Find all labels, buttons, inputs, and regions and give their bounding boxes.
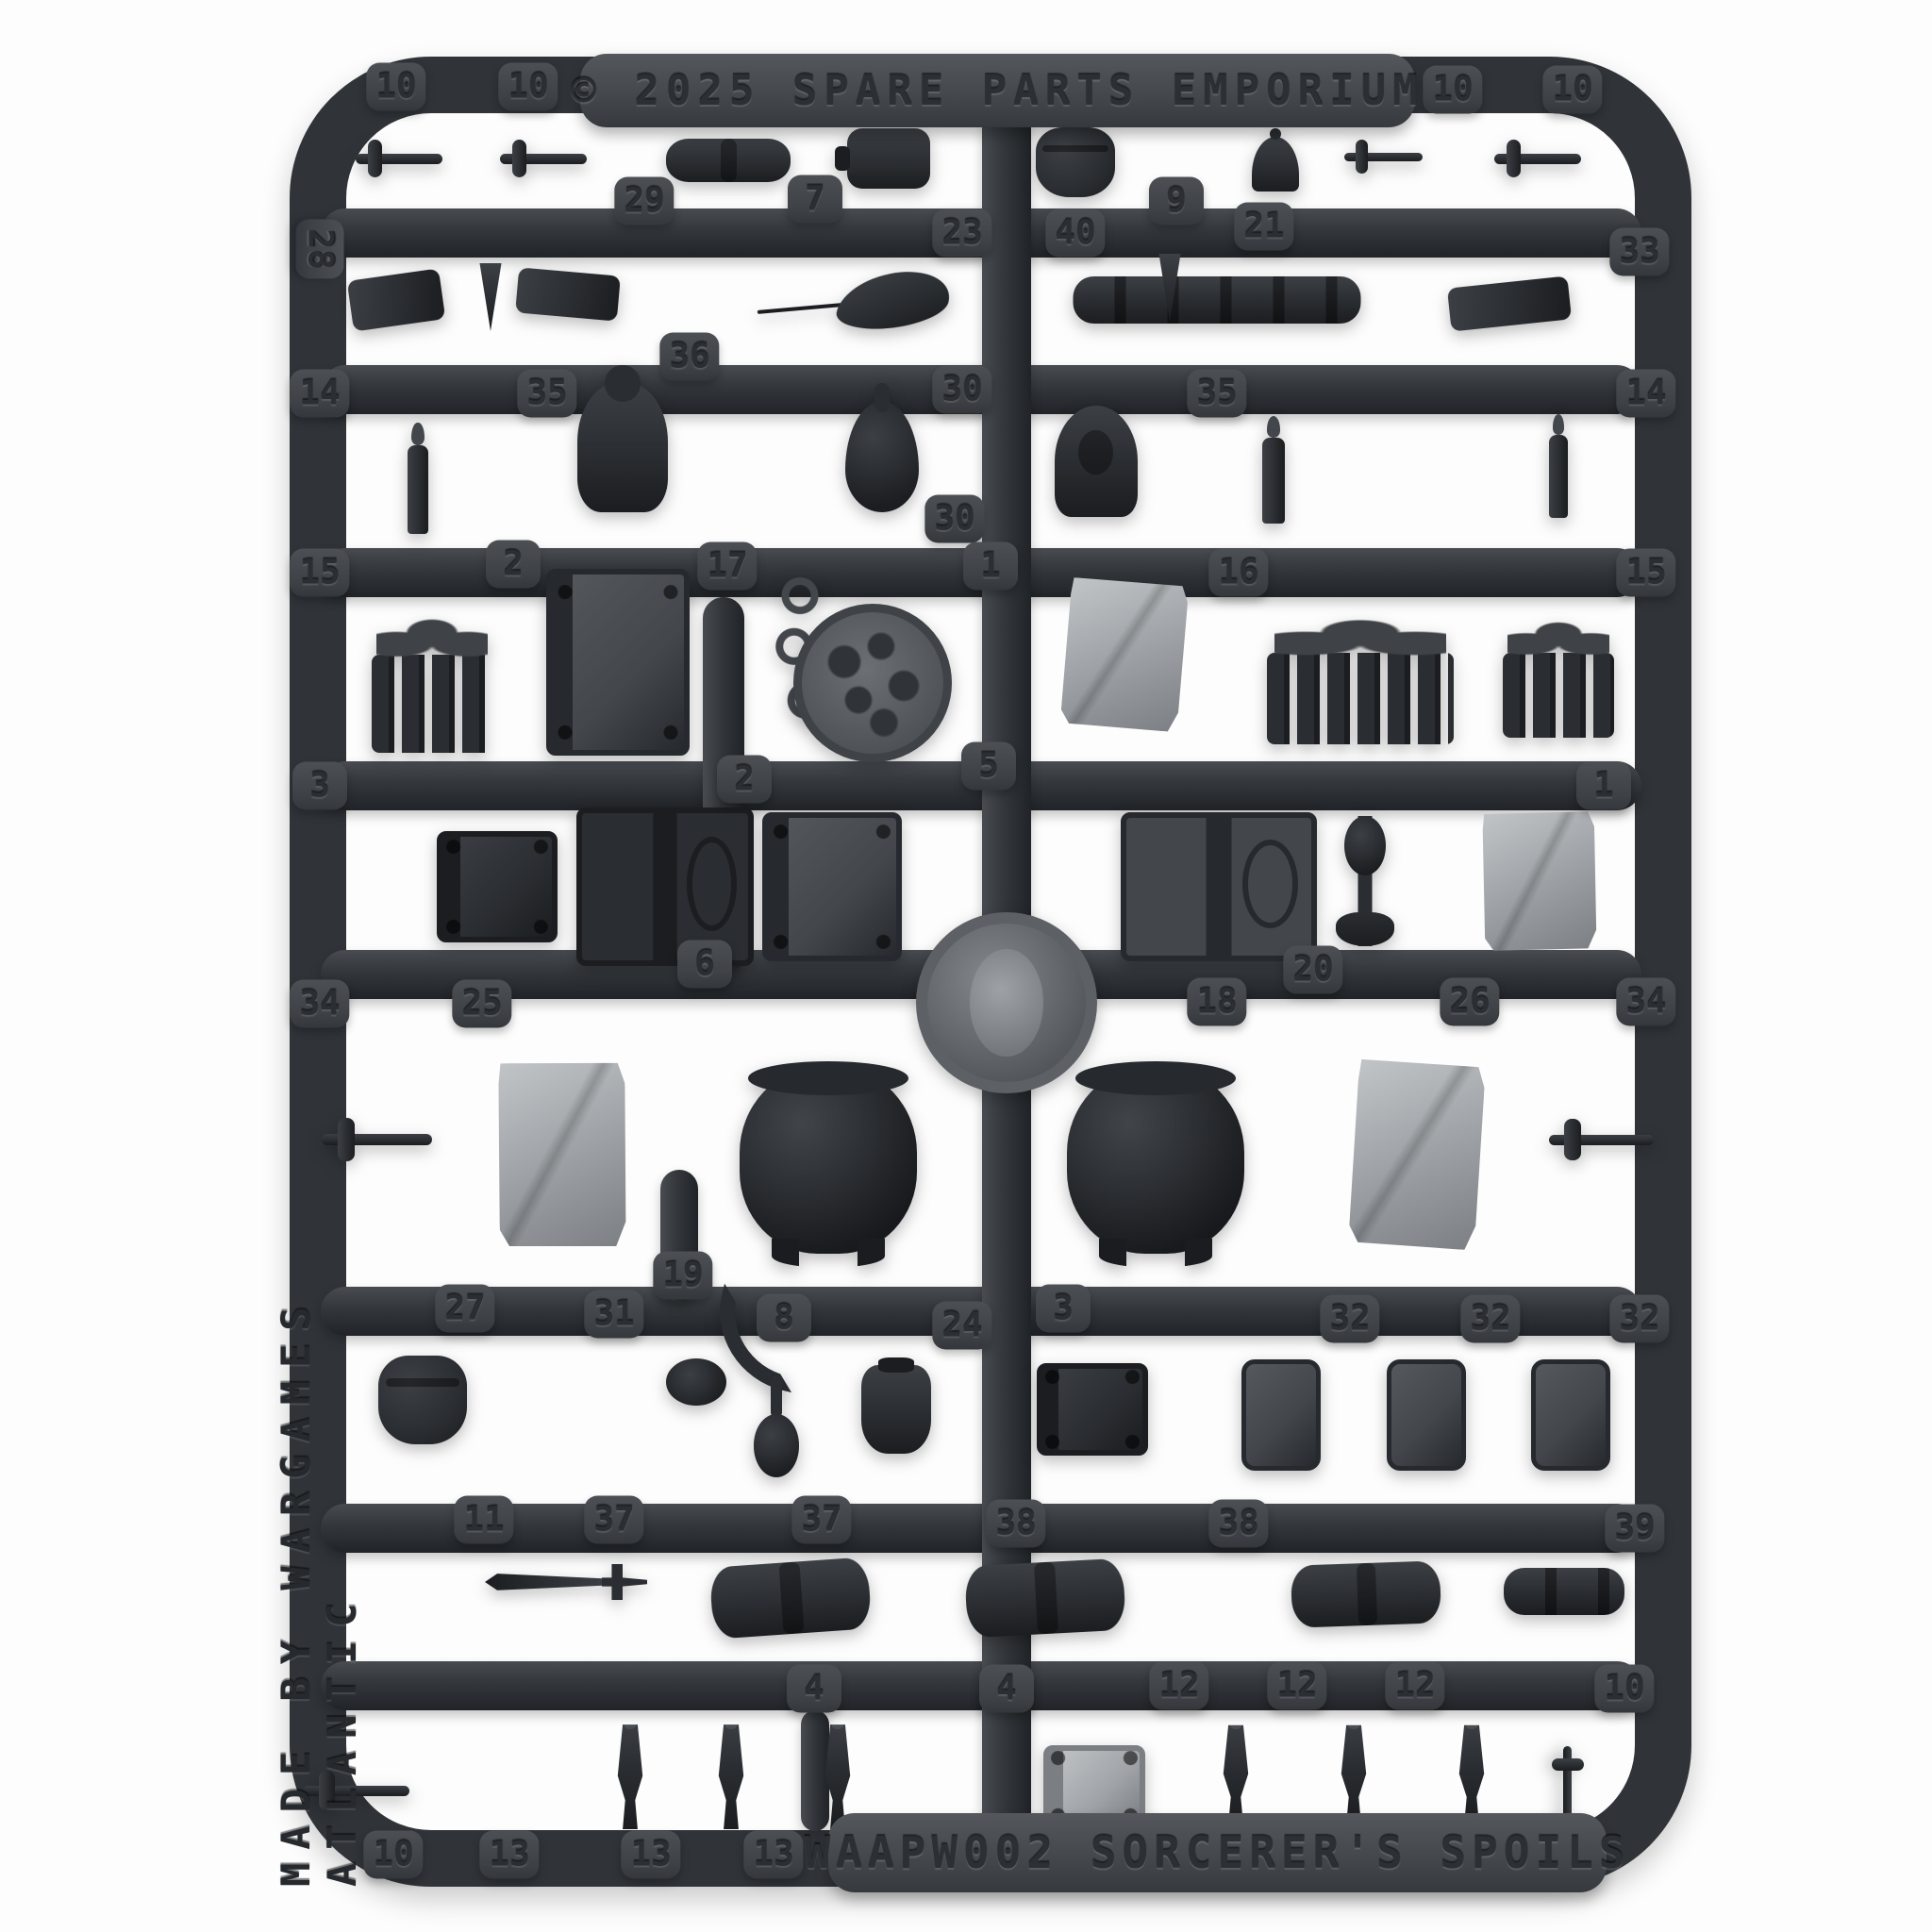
sprue-product-photo: 1010101028141533429723409213335363035142… [0, 0, 1932, 1932]
top-banner-text: © 2025 SPARE PARTS EMPORIUM [571, 67, 1424, 115]
part-number: 25 [461, 985, 502, 1024]
part-number: 26 [1449, 983, 1490, 1022]
part-number: 12 [1276, 1667, 1317, 1706]
part-number: 29 [624, 182, 664, 221]
part-number: 10 [373, 1836, 413, 1874]
part-number-tab: 2 [717, 756, 772, 804]
part-number-tab: 10 [363, 1831, 423, 1879]
part-key [1344, 140, 1425, 174]
part-number-tab: 11 [454, 1496, 513, 1544]
part-number-tab: 35 [517, 370, 576, 418]
part-bottle [746, 1375, 807, 1477]
part-jar [847, 128, 930, 189]
part-number-tab: 10 [1542, 66, 1602, 114]
part-number-tab: 12 [1267, 1662, 1326, 1710]
part-number-tab: 38 [986, 1500, 1045, 1548]
part-number-tab: 32 [1460, 1295, 1520, 1343]
side-banner-text: MADE BY WARGAMES ATLANTIC [273, 981, 365, 1887]
part-number-tab: 28 [296, 219, 344, 278]
part-number: 10 [375, 68, 416, 107]
part-bookopen [1121, 812, 1317, 961]
part-number: 11 [463, 1501, 504, 1540]
part-number-tab: 3 [1036, 1285, 1091, 1333]
part-number: 1 [1593, 767, 1614, 806]
part-scrollsheet [1478, 808, 1601, 954]
part-number-tab: 32 [1609, 1295, 1669, 1343]
part-number: 24 [941, 1307, 982, 1345]
part-candle1 [1528, 414, 1589, 518]
part-number: 4 [804, 1670, 824, 1708]
part-number: 12 [1394, 1667, 1435, 1706]
part-number: 17 [707, 547, 747, 586]
part-roll [666, 139, 791, 182]
part-number-tab: 32 [1320, 1295, 1379, 1343]
part-number: 28 [301, 228, 340, 269]
part-candle1 [1239, 416, 1308, 524]
part-number-tab: 30 [924, 495, 984, 543]
part-book [437, 831, 558, 942]
part-number: 9 [1166, 182, 1187, 221]
part-number: 18 [1196, 983, 1237, 1022]
part-skulldisc [793, 604, 952, 762]
part-candelabra [372, 613, 492, 753]
bottom-banner-product: WAAPW002 SORCERER'S SPOILS [828, 1813, 1607, 1892]
part-number: 8 [774, 1299, 794, 1338]
part-number: 4 [996, 1670, 1017, 1708]
part-number: 12 [1158, 1667, 1199, 1706]
part-number-tab: 21 [1234, 203, 1293, 251]
part-number-tab: 4 [979, 1665, 1034, 1713]
part-scrollsheet [1060, 577, 1189, 732]
part-book [762, 812, 902, 961]
part-book [546, 569, 690, 756]
part-finial [1330, 816, 1400, 946]
part-number-tab: 4 [787, 1665, 841, 1713]
part-number: 13 [753, 1836, 793, 1874]
side-banner-manufacturer: MADE BY WARGAMES ATLANTIC [288, 981, 350, 1887]
part-number-tab: 35 [1187, 370, 1246, 418]
part-number: 31 [593, 1295, 634, 1334]
part-medallion [916, 912, 1097, 1093]
part-number: 35 [1196, 375, 1237, 413]
part-number: 3 [1053, 1290, 1074, 1328]
bottom-banner-text: WAAPW002 SORCERER'S SPOILS [804, 1827, 1630, 1878]
part-number-tab: 30 [932, 366, 991, 414]
part-pouch [378, 1356, 467, 1444]
part-number: 32 [1470, 1300, 1510, 1339]
part-number: 10 [1604, 1670, 1644, 1708]
part-number-tab: 25 [452, 980, 511, 1028]
part-number: 34 [1625, 983, 1666, 1022]
part-number-tab: 14 [290, 370, 349, 418]
part-number-tab: 1 [1576, 762, 1631, 810]
part-number-tab: 13 [621, 1831, 680, 1879]
part-number-tab: 18 [1187, 978, 1246, 1026]
part-number: 20 [1292, 951, 1333, 990]
part-number-tab: 10 [1594, 1665, 1654, 1713]
part-number: 15 [1625, 554, 1666, 592]
part-number: 7 [805, 180, 825, 219]
part-key [500, 140, 591, 177]
part-number-tab: 13 [743, 1831, 803, 1879]
part-number: 15 [299, 554, 340, 592]
part-number: 38 [1218, 1505, 1258, 1543]
part-block [1241, 1359, 1321, 1471]
part-number-tab: 33 [1609, 228, 1669, 276]
part-number-tab: 38 [1208, 1500, 1268, 1548]
part-number: 32 [1329, 1300, 1370, 1339]
part-number-tab: 10 [1423, 66, 1482, 114]
part-number-tab: 12 [1149, 1662, 1208, 1710]
part-figure [577, 382, 668, 512]
part-number: 40 [1055, 214, 1095, 253]
part-scrollsheet [1349, 1059, 1486, 1251]
part-candelabra [1503, 617, 1614, 738]
part-roll [1291, 1560, 1441, 1627]
part-number: 10 [508, 68, 548, 107]
part-number: 1 [980, 547, 1001, 586]
top-banner-copyright: © 2025 SPARE PARTS EMPORIUM [580, 54, 1415, 127]
part-number-tab: 29 [614, 177, 674, 225]
part-number-tab: 27 [435, 1285, 494, 1333]
part-key [356, 140, 446, 177]
part-number-tab: 34 [1616, 978, 1675, 1026]
part-number-tab: 24 [932, 1302, 991, 1350]
part-number-tab: 36 [659, 333, 719, 381]
part-number-tab: 9 [1149, 177, 1204, 225]
part-scrollsheet [494, 1059, 631, 1251]
part-number-tab: 14 [1616, 370, 1675, 418]
part-number: 14 [1625, 375, 1666, 413]
part-number-tab: 37 [584, 1496, 643, 1544]
part-number: 37 [801, 1501, 841, 1540]
part-number: 23 [941, 214, 982, 253]
part-number: 21 [1243, 208, 1284, 246]
part-number-tab: 2 [486, 541, 541, 589]
part-cauldron [1067, 1067, 1244, 1254]
part-telescope [1074, 276, 1361, 324]
part-number: 39 [1614, 1509, 1655, 1548]
part-number: 37 [593, 1501, 634, 1540]
part-number: 32 [1619, 1300, 1659, 1339]
part-number: 2 [503, 545, 524, 584]
part-number-tab: 31 [584, 1291, 643, 1339]
part-number-tab: 37 [791, 1496, 851, 1544]
part-strap [515, 267, 621, 321]
part-dagger [485, 1559, 647, 1605]
part-spyglass [1504, 1568, 1624, 1615]
part-block [1387, 1359, 1466, 1471]
part-number: 16 [1218, 554, 1258, 592]
part-jug [861, 1365, 931, 1454]
part-candle1 [387, 423, 449, 534]
part-number: 13 [489, 1836, 529, 1874]
part-candelabra [1267, 614, 1454, 744]
part-key [1494, 140, 1585, 177]
part-number: 36 [669, 338, 709, 376]
part-number-tab: 12 [1385, 1662, 1444, 1710]
part-number-tab: 1 [963, 542, 1018, 591]
part-number: 14 [299, 375, 340, 413]
sprue-rail-vertical [801, 1710, 829, 1831]
part-key [1549, 1119, 1658, 1160]
part-block [1531, 1359, 1610, 1471]
part-number: 13 [630, 1836, 671, 1874]
part-number: 33 [1619, 233, 1659, 272]
part-roll [964, 1558, 1126, 1639]
part-number: 19 [662, 1257, 703, 1295]
part-number: 30 [934, 500, 974, 539]
part-number-tab: 13 [479, 1831, 539, 1879]
part-bust [1055, 406, 1138, 517]
part-number-tab: 3 [292, 762, 347, 810]
part-number-tab: 39 [1605, 1505, 1664, 1553]
part-number: 3 [309, 767, 330, 806]
part-number-tab: 23 [932, 209, 991, 258]
part-number: 30 [941, 371, 982, 409]
part-number-tab: 17 [697, 542, 757, 591]
part-pouch [1036, 127, 1115, 197]
sprue-rail-horizontal [321, 1504, 1641, 1553]
part-number: 38 [995, 1505, 1036, 1543]
part-number-tab: 26 [1440, 978, 1499, 1026]
part-number: 27 [444, 1290, 485, 1328]
part-book [1037, 1363, 1148, 1456]
part-number: 10 [1552, 71, 1592, 109]
part-number: 10 [1432, 71, 1473, 109]
part-number-tab: 15 [290, 549, 349, 597]
part-number: 35 [526, 375, 567, 413]
part-number-tab: 5 [961, 742, 1016, 791]
part-number-tab: 7 [788, 175, 842, 224]
part-number-tab: 10 [366, 63, 425, 111]
part-number-tab: 19 [653, 1252, 712, 1300]
part-number-tab: 15 [1616, 549, 1675, 597]
part-number: 5 [978, 747, 999, 786]
part-number-tab: 8 [757, 1294, 811, 1342]
part-cauldron [740, 1067, 917, 1254]
part-number: 2 [734, 760, 755, 799]
part-number-tab: 6 [677, 941, 732, 989]
part-number-tab: 40 [1045, 209, 1105, 258]
part-number: 6 [694, 945, 715, 984]
part-number-tab: 10 [498, 63, 558, 111]
part-roll [709, 1557, 873, 1640]
part-number-tab: 20 [1283, 946, 1342, 994]
part-number-tab: 16 [1208, 549, 1268, 597]
